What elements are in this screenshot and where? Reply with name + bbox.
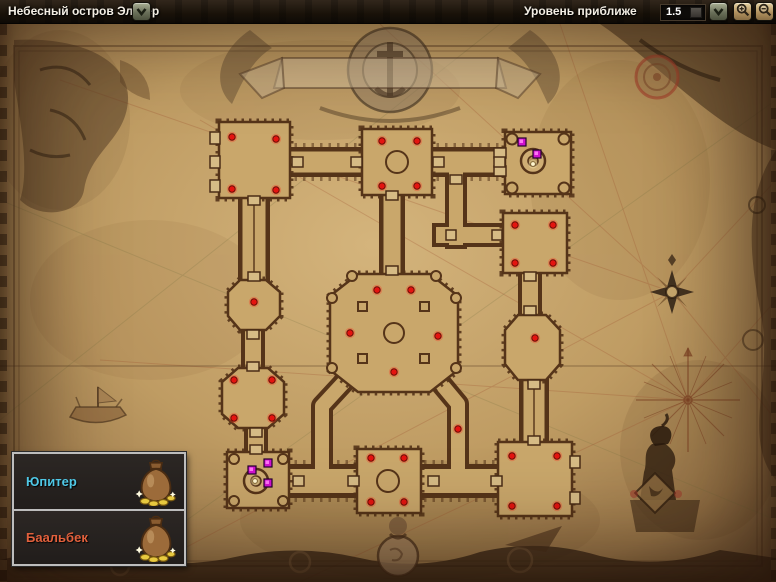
monster-red-dot-marker bbox=[414, 183, 420, 189]
monster-red-dot-marker bbox=[509, 453, 515, 459]
monster-red-dot-marker bbox=[229, 134, 235, 140]
purple-square-highlight bbox=[520, 140, 524, 144]
monster-red-dot-marker bbox=[532, 335, 538, 341]
legend-panel: Юпитер Баальбек bbox=[12, 452, 186, 566]
monster-red-dot-marker bbox=[368, 499, 374, 505]
seal-stamp bbox=[636, 56, 678, 98]
monster-red-dot-marker bbox=[512, 222, 518, 228]
monster-red-dot-marker bbox=[347, 330, 353, 336]
legend-item-label: Баальбек bbox=[14, 530, 134, 545]
legend-item[interactable]: Юпитер bbox=[14, 454, 184, 509]
monster-red-dot-marker bbox=[379, 138, 385, 144]
map-toolbar: Небесный остров Эльтер Уровень приближе … bbox=[0, 0, 776, 24]
white-dot-marker bbox=[253, 479, 258, 484]
monster-red-dot-marker bbox=[455, 426, 461, 432]
monster-red-dot-marker bbox=[401, 455, 407, 461]
zoom-in-button[interactable] bbox=[733, 2, 752, 21]
monster-red-dot-marker bbox=[229, 186, 235, 192]
zoom-level-value[interactable]: 1.5 bbox=[660, 4, 706, 21]
money-bag-icon bbox=[134, 514, 178, 562]
monster-red-dot-marker bbox=[401, 499, 407, 505]
zoom-out-button[interactable] bbox=[755, 2, 774, 21]
monster-red-dot-marker bbox=[512, 260, 518, 266]
monster-red-dot-marker bbox=[273, 136, 279, 142]
purple-square-highlight bbox=[266, 481, 270, 485]
monster-red-dot-marker bbox=[231, 415, 237, 421]
monster-red-dot-marker bbox=[251, 299, 257, 305]
left-edge-ornament-strip bbox=[0, 24, 7, 582]
monster-red-dot-marker bbox=[550, 222, 556, 228]
monster-red-dot-marker bbox=[550, 260, 556, 266]
monster-red-dot-marker bbox=[269, 415, 275, 421]
monster-red-dot-marker bbox=[435, 333, 441, 339]
monster-red-dot-marker bbox=[408, 287, 414, 293]
zoom-level-label: Уровень приближе bbox=[524, 4, 637, 18]
map-screen: Небесный остров Эльтер Уровень приближе … bbox=[0, 0, 776, 582]
zoom-level-value-text: 1.5 bbox=[666, 6, 681, 18]
monster-red-dot-marker bbox=[554, 503, 560, 509]
purple-square-highlight bbox=[266, 461, 270, 465]
monster-red-dot-marker bbox=[554, 453, 560, 459]
chevron-down-icon bbox=[136, 4, 147, 19]
monster-red-dot-marker bbox=[414, 138, 420, 144]
money-bag-icon bbox=[134, 458, 178, 506]
monster-red-dot-marker bbox=[273, 187, 279, 193]
dungeon-room-right-octagon bbox=[505, 315, 560, 380]
zoom-in-magnifier-icon bbox=[736, 3, 750, 20]
location-dropdown-button[interactable] bbox=[132, 2, 151, 21]
right-edge-ornament-strip bbox=[771, 24, 776, 582]
zoom-dropdown-button[interactable] bbox=[709, 2, 728, 21]
dungeon-map bbox=[210, 122, 580, 516]
purple-square-highlight bbox=[535, 152, 539, 156]
legend-item[interactable]: Баальбек bbox=[14, 509, 184, 564]
white-dot-marker bbox=[531, 162, 536, 167]
zoom-level-slider-handle[interactable] bbox=[690, 7, 702, 18]
monster-red-dot-marker bbox=[231, 377, 237, 383]
monster-red-dot-marker bbox=[368, 455, 374, 461]
monster-red-dot-marker bbox=[269, 377, 275, 383]
monster-red-dot-marker bbox=[379, 183, 385, 189]
legend-item-label: Юпитер bbox=[14, 474, 134, 489]
monster-red-dot-marker bbox=[391, 369, 397, 375]
monster-red-dot-marker bbox=[374, 287, 380, 293]
chevron-down-icon bbox=[713, 4, 724, 19]
monster-red-dot-marker bbox=[509, 503, 515, 509]
purple-square-highlight bbox=[250, 468, 254, 472]
zoom-out-magnifier-icon bbox=[758, 3, 772, 20]
